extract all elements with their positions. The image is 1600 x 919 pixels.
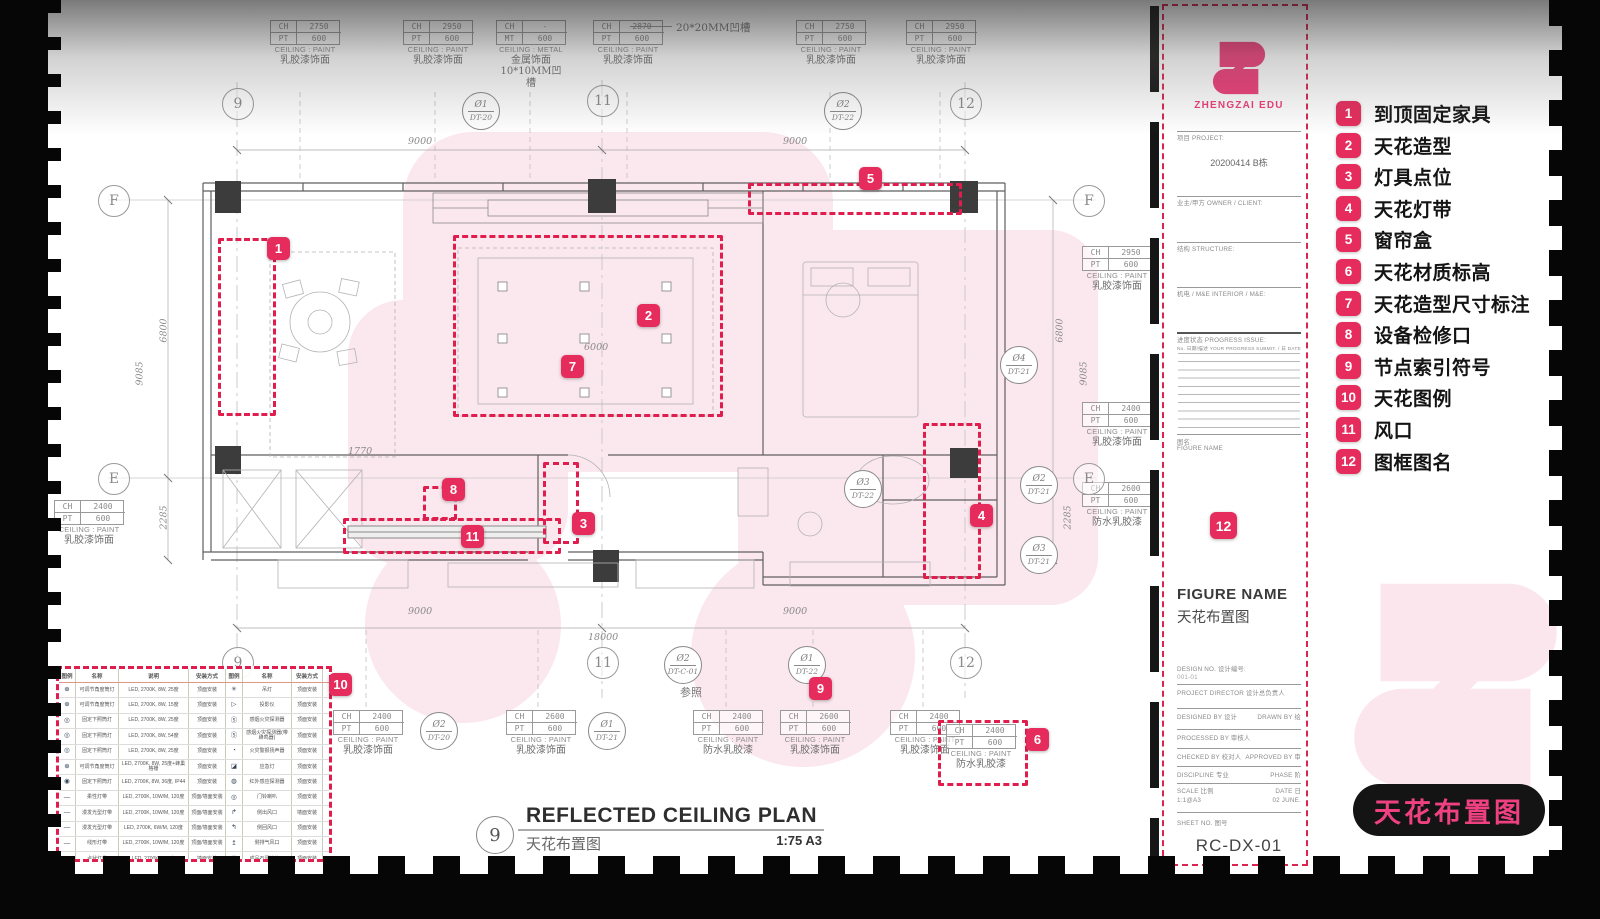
callout-finish-cn: 乳胶漆饰面 <box>906 55 976 67</box>
callout-finish-en: CEILING : PAINT <box>693 736 763 745</box>
detail-sheet: DT-21 <box>1028 486 1050 496</box>
grid-bubble: 11 <box>587 647 619 679</box>
legend-table-row: — 漫发光型灯带 LED, 2700K, 10W/M, 120度 顶面/墙面安装… <box>59 806 329 821</box>
symbol-icon: — <box>59 806 76 820</box>
callout-finish-cn: 乳胶漆饰面 <box>270 55 340 67</box>
legend-item-label: 设备检修口 <box>1374 321 1472 348</box>
annotation-badge: 11 <box>461 525 484 548</box>
figure-name-cn: 天花布置图 <box>1177 606 1301 627</box>
detail-number: Ø2 <box>670 654 696 666</box>
dimension-label: 2285 <box>1063 505 1074 529</box>
legend-table-row: — 线形灯带 LED, 2700K, 10W/M, 120度 顶面/墙面安装 ↥… <box>59 837 329 852</box>
dimension-label: 9000 <box>408 606 432 617</box>
rule <box>1177 812 1301 813</box>
annotation-box <box>748 183 962 215</box>
figure-name-en: FIGURE NAME <box>1177 586 1301 603</box>
symbol-icon: ↰ <box>226 822 243 836</box>
drawing-number-bubble: 9 <box>476 816 514 854</box>
detail-marker: Ø2 DT-20 <box>420 712 460 750</box>
legend-table-header-cell: 安装方式 <box>292 669 323 682</box>
callout-finish-en: CEILING : PAINT <box>1082 508 1152 517</box>
legend-item-label: 窗帘盒 <box>1374 226 1433 253</box>
dimension-label: 9000 <box>408 136 432 147</box>
legend-item: 8 设备检修口 <box>1336 322 1530 347</box>
symbol-icon: ◎ <box>59 729 76 743</box>
callout-finish-cn: 乳胶漆饰面 <box>780 745 850 757</box>
grid-bubble: 12 <box>950 647 982 679</box>
dimension-label: 1770 <box>348 446 372 457</box>
callout-finish-en: CEILING : PAINT <box>1082 272 1152 281</box>
rule <box>1177 196 1301 197</box>
rule <box>1177 783 1301 784</box>
sheet-no-label: SHEET NO. 图号 <box>1177 818 1301 827</box>
sheet-page: CH2750 PT600 CEILING : PAINT 乳胶漆饰面 CH295… <box>48 0 1562 874</box>
callout-finish-cn: 乳胶漆饰面 <box>333 745 403 757</box>
drawing-title-en: REFLECTED CEILING PLAN <box>526 804 838 828</box>
discipline-label: DISCIPLINE 专业 <box>1177 770 1229 779</box>
annotation-legend-panel: 1 到顶固定家具 2 天花造型 3 灯具点位 4 <box>1310 0 1562 874</box>
symbol-icon: ⊕ <box>59 760 76 774</box>
callout-table: CH2600 PT600 <box>780 710 850 735</box>
symbol-icon: — <box>59 837 76 851</box>
legend-table-header-cell: 说明 <box>119 669 189 682</box>
legend-item: 10 天花图例 <box>1336 385 1530 410</box>
ceiling-callout: CH2750 PT600 CEILING : PAINT 乳胶漆饰面 <box>270 20 340 66</box>
symbol-icon: ◎ <box>226 791 243 805</box>
ceiling-callout: CH2950 PT600 CEILING : PAINT 乳胶漆饰面 <box>906 20 976 66</box>
groove-note: 20*20MM凹槽 <box>676 20 750 35</box>
detail-sheet: DT-22 <box>832 112 854 122</box>
drawing-title-cn: 天花布置图 <box>526 833 601 854</box>
callout-finish-cn: 乳胶漆饰面 <box>54 535 124 547</box>
rule <box>1177 708 1301 709</box>
rule <box>1177 684 1301 685</box>
detail-number: Ø3 <box>1026 544 1052 556</box>
callout-table: CH2400 PT600 <box>54 500 124 525</box>
annotation-box <box>923 423 981 579</box>
ceiling-callout: CH2950 PT600 CEILING : PAINT 乳胶漆饰面 <box>403 20 473 66</box>
callout-table: CH2400 PT600 <box>693 710 763 735</box>
symbol-icon: ◍ <box>226 775 243 789</box>
rule <box>1177 766 1301 767</box>
dimension-label: 2285 <box>159 505 170 529</box>
progress-rows <box>1178 353 1300 431</box>
detail-marker: Ø1 DT-20 <box>462 92 502 130</box>
callout-finish-en: CEILING : PAINT <box>780 736 850 745</box>
detail-marker: Ø3 DT-21 <box>1020 536 1060 574</box>
detail-sheet: DT-20 <box>428 732 450 742</box>
legend-item-badge: 1 <box>1336 101 1361 126</box>
symbol-icon: ◎ <box>59 714 76 728</box>
rule <box>1177 287 1301 288</box>
detail-sheet: DT-21 <box>596 732 618 742</box>
symbol-icon: Ⓢ <box>226 714 243 728</box>
approved-by-label: APPROVED BY 审 <box>1245 752 1301 761</box>
symbol-icon: ◔ <box>226 745 243 759</box>
annotation-badge: 7 <box>561 355 584 378</box>
legend-item-label: 天花图例 <box>1374 384 1452 411</box>
legend-list: 1 到顶固定家具 2 天花造型 3 灯具点位 4 <box>1336 101 1530 474</box>
legend-table-header-cell: 图例 <box>59 669 76 682</box>
legend-item-label: 到顶固定家具 <box>1374 100 1491 127</box>
legend-item: 6 天花材质标高 <box>1336 259 1530 284</box>
annotation-badge: 8 <box>442 478 465 501</box>
legend-item-label: 天花灯带 <box>1374 195 1452 222</box>
legend-item-badge: 9 <box>1336 354 1361 379</box>
sheet-number: RC-DX-01 <box>1177 836 1301 856</box>
annotation-badge: 4 <box>970 504 993 527</box>
annotation-badge: 6 <box>1026 728 1049 751</box>
detail-sheet: DT-20 <box>470 112 492 122</box>
rule <box>1177 434 1301 435</box>
detail-number: Ø3 <box>850 478 876 490</box>
detail-marker: Ø1 DT-21 <box>588 712 628 750</box>
legend-table-header-cell: 名称 <box>76 669 119 682</box>
rule <box>1177 748 1301 749</box>
legend-item: 2 天花造型 <box>1336 133 1530 158</box>
callout-finish-cn: 防水乳胶漆 <box>1082 517 1152 529</box>
legend-item-label: 天花材质标高 <box>1374 258 1491 285</box>
legend-table-header-cell: 安装方式 <box>189 669 226 682</box>
ceiling-callout: CH2600 PT600 CEILING : PAINT 乳胶漆饰面 <box>780 710 850 756</box>
symbol-icon: Ⓢ <box>226 729 243 743</box>
drawing-title: 9 REFLECTED CEILING PLAN 天花布置图 1:75 A3 <box>468 804 838 854</box>
title-rule <box>518 829 824 831</box>
detail-number: Ø1 <box>468 100 494 112</box>
detail-sheet: DT-C-01 <box>668 666 698 676</box>
detail-number: Ø4 <box>1006 354 1032 366</box>
legend-table-row: — 漫发光型灯带 LED, 2700K, 6W/M, 120度 顶面/墙面安装 … <box>59 822 329 837</box>
title-block: ZHENGZAI EDU 项目 PROJECT: 20200414 B栋 业主/… <box>1172 0 1306 874</box>
annotation-badge: 10 <box>329 673 352 696</box>
callout-table: CH2950 PT600 <box>906 20 976 45</box>
grid-bubble: 12 <box>950 88 982 120</box>
detail-sheet: DT-21 <box>1008 366 1030 376</box>
legend-item: 5 窗帘盒 <box>1336 227 1530 252</box>
legend-item-badge: 10 <box>1336 385 1361 410</box>
rule <box>1177 332 1301 334</box>
callout-finish-en: CEILING : PAINT <box>906 46 976 55</box>
grid-bubble: E <box>98 463 130 495</box>
callout-finish-en: CEILING : PAINT <box>270 46 340 55</box>
symbol-icon: ⊠ <box>226 852 243 862</box>
legend-table-header: 图例名称说明安装方式图例名称安装方式 <box>59 669 329 683</box>
grid-bubble: 9 <box>222 88 254 120</box>
legend-item-label: 天花造型 <box>1374 132 1452 159</box>
legend-item: 12 图框图名 <box>1336 449 1530 474</box>
callout-table: CH2600 PT600 <box>506 710 576 735</box>
detail-sheet: DT-22 <box>852 490 874 500</box>
drawn-by-label: DRAWN BY 绘 <box>1257 712 1301 721</box>
date-value: 02 JUNE. <box>1272 797 1301 804</box>
legend-item: 4 天花灯带 <box>1336 196 1530 221</box>
callout-finish-cn: 乳胶漆饰面 <box>403 55 473 67</box>
callout-finish-en: CEILING : PAINT <box>1082 428 1152 437</box>
legend-item: 1 到顶固定家具 <box>1336 101 1530 126</box>
sheet-name-tag-text: 天花布置图 <box>1374 791 1524 830</box>
detail-sheet: DT-22 <box>796 666 818 676</box>
grid-bubble: 11 <box>587 85 619 117</box>
annotation-badge: 2 <box>637 304 660 327</box>
director-label: PROJECT DIRECTOR 设计总负责人 <box>1177 688 1301 697</box>
scale-label: SCALE 比例 <box>1177 786 1214 795</box>
detail-marker: Ø2 DT-C-01 参照 <box>664 646 704 684</box>
me-label: 机电 / M&E INTERIOR / M&E: <box>1177 289 1301 298</box>
ceiling-callout: CH2400 PT600 CEILING : PAINT 乳胶漆饰面 <box>54 500 124 546</box>
grid-bubble: F <box>1073 185 1105 217</box>
symbol-icon: ◉ <box>59 775 76 789</box>
detail-marker: Ø2 DT-21 <box>1020 466 1060 504</box>
legend-item-badge: 2 <box>1336 133 1361 158</box>
legend-item-label: 图框图名 <box>1374 448 1452 475</box>
legend-table-row: ⊕ 可调节角度筒灯 LED, 2700K, 8W, 25度+蜂巢格栅 顶面安装 … <box>59 760 329 775</box>
ceiling-legend-table: 图例名称说明安装方式图例名称安装方式 ⊕ 可调节角度筒灯 LED, 2700K,… <box>56 666 332 862</box>
detail-marker: Ø3 DT-22 <box>844 470 884 508</box>
symbol-icon: ⊕ <box>59 683 76 697</box>
legend-item-badge: 3 <box>1336 164 1361 189</box>
legend-table-header-cell: 图例 <box>226 669 243 682</box>
symbol-icon: — <box>59 822 76 836</box>
legend-item-badge: 8 <box>1336 322 1361 347</box>
legend-table-body: ⊕ 可调节角度筒灯 LED, 2700K, 8W, 25度 顶面安装 ✳ 吊灯 … <box>59 683 329 862</box>
legend-item: 7 天花造型尺寸标注 <box>1336 291 1530 316</box>
callout-finish-extra: 10*10MM凹槽 <box>496 66 566 89</box>
callout-finish-cn: 乳胶漆饰面 <box>1082 437 1152 449</box>
progress-label: 进度状态 PROGRESS ISSUE: <box>1177 335 1301 344</box>
legend-item-badge: 5 <box>1336 227 1361 252</box>
owner-label: 业主/甲方 OWNER / CLIENT: <box>1177 198 1301 207</box>
progress-columns: No. 日期/描述 YOUR PROGRESS SUBMIT. / 日 DATE <box>1177 345 1301 352</box>
callout-table: CH2400 PT600 <box>333 710 403 735</box>
callout-finish-cn: 乳胶漆饰面 <box>593 55 663 67</box>
dimension-label: 18000 <box>588 632 618 643</box>
grid-bubble: E <box>1073 463 1105 495</box>
design-no-value: 001-01 <box>1177 674 1301 681</box>
zhengzai-logo-icon <box>1210 40 1268 96</box>
callout-finish-cn: 防水乳胶漆 <box>693 745 763 757</box>
designed-by-label: DESIGNED BY 设计 <box>1177 712 1237 721</box>
callout-table: CH2950 PT600 <box>403 20 473 45</box>
dimension-label: 6800 <box>1055 318 1066 342</box>
annotation-box <box>218 238 276 416</box>
symbol-icon: ▷ <box>226 698 243 712</box>
dimension-label: 9085 <box>135 361 146 385</box>
detail-number: Ø2 <box>1026 474 1052 486</box>
symbol-icon: ⊕ <box>59 698 76 712</box>
callout-finish-cn: 乳胶漆饰面 <box>796 55 866 67</box>
annotation-badge: 1 <box>267 237 290 260</box>
annotation-box <box>343 518 561 554</box>
symbol-icon: — <box>59 852 76 862</box>
callout-finish-en: CEILING : PAINT <box>593 46 663 55</box>
dimension-label: 9000 <box>783 136 807 147</box>
symbol-icon: ◎ <box>59 745 76 759</box>
legend-table-row: ◎ 固定下照筒灯 LED, 2700K, 8W, 54度 顶面安装 Ⓢ 感烟火灾… <box>59 729 329 744</box>
legend-table-row: ⊕ 可调节角度筒灯 LED, 2700K, 8W, 15度 顶面安装 ▷ 投影仪… <box>59 698 329 713</box>
drawing-sheet: CH2750 PT600 CEILING : PAINT 乳胶漆饰面 CH295… <box>0 0 1600 919</box>
detail-number: Ø1 <box>794 654 820 666</box>
date-label: DATE 日 <box>1275 786 1301 795</box>
dimension-label: 9000 <box>783 606 807 617</box>
legend-item-badge: 7 <box>1336 291 1361 316</box>
legend-item-label: 天花造型尺寸标注 <box>1374 290 1530 317</box>
callout-finish-en: CEILING : PAINT <box>796 46 866 55</box>
drawing-scale: 1:75 A3 <box>776 833 822 854</box>
frame-badge: 12 <box>1210 512 1237 539</box>
callout-table: CH2750 PT600 <box>270 20 340 45</box>
detail-number: Ø1 <box>594 720 620 732</box>
figure-label-en: FIGURE NAME <box>1177 445 1301 452</box>
symbol-icon: ↥ <box>226 837 243 851</box>
ceiling-callout: CH2400 PT600 CEILING : PAINT 乳胶漆饰面 <box>1082 402 1152 448</box>
legend-table-row: ◉ 固定下照筒灯 LED, 2700K, 8W, 36度, IP44 顶面安装 … <box>59 775 329 790</box>
processed-by-label: PROCESSED BY 审核人 <box>1177 733 1301 742</box>
dimension-label: 9085 <box>1079 361 1090 385</box>
callout-finish-en: CEILING : PAINT <box>403 46 473 55</box>
ceiling-callout: CH2950 PT600 CEILING : PAINT 乳胶漆饰面 <box>1082 246 1152 292</box>
callout-finish-en: CEILING : METAL <box>496 46 566 55</box>
brand-name: ZHENGZAI EDU <box>1177 100 1301 111</box>
annotation-badge: 9 <box>809 677 832 700</box>
callout-finish-cn: 乳胶漆饰面 <box>506 745 576 757</box>
symbol-icon: — <box>59 791 76 805</box>
rule <box>1177 729 1301 730</box>
callout-finish-cn: 乳胶漆饰面 <box>1082 281 1152 293</box>
ceiling-callout: CH2400 PT600 CEILING : PAINT 防水乳胶漆 <box>693 710 763 756</box>
legend-item: 9 节点索引符号 <box>1336 354 1530 379</box>
annotation-box <box>938 720 1028 786</box>
symbol-icon: ↱ <box>226 806 243 820</box>
grid-bubble: F <box>98 185 130 217</box>
project-label: 项目 PROJECT: <box>1177 133 1301 142</box>
dimension-label: 6800 <box>159 318 170 342</box>
plan-area: CH2750 PT600 CEILING : PAINT 乳胶漆饰面 CH295… <box>48 0 1148 874</box>
detail-marker: Ø2 DT-22 <box>824 92 864 130</box>
detail-sheet: DT-21 <box>1028 556 1050 566</box>
ceiling-callout: CH2600 PT600 CEILING : PAINT 乳胶漆饰面 <box>506 710 576 756</box>
legend-table-row: ⊕ 可调节角度筒灯 LED, 2700K, 8W, 25度 顶面安装 ✳ 吊灯 … <box>59 683 329 698</box>
rule <box>1177 242 1301 243</box>
structure-label: 结构 STRUCTURE: <box>1177 244 1301 253</box>
legend-item-label: 节点索引符号 <box>1374 353 1491 380</box>
legend-item-badge: 4 <box>1336 196 1361 221</box>
ceiling-callout: CH2400 PT600 CEILING : PAINT 乳胶漆饰面 <box>333 710 403 756</box>
annotation-badge: 3 <box>572 512 595 535</box>
scale-value: 1:1@A3 <box>1177 797 1201 804</box>
detail-number: Ø2 <box>426 720 452 732</box>
annotation-badge: 5 <box>859 167 882 190</box>
detail-note: 参照 <box>680 684 702 700</box>
callout-finish-en: CEILING : PAINT <box>506 736 576 745</box>
phase-label: PHASE 阶 <box>1270 770 1301 779</box>
detail-marker: Ø4 DT-21 <box>1000 346 1040 384</box>
callout-table: CH- MT600 <box>496 20 566 45</box>
checked-by-label: CHECKED BY 校对人 <box>1177 752 1241 761</box>
legend-item-badge: 6 <box>1336 259 1361 284</box>
callout-finish-en: CEILING : PAINT <box>54 526 124 535</box>
symbol-icon: ◪ <box>226 760 243 774</box>
legend-table-row: ◎ 固定下照筒灯 LED, 2700K, 8W, 25度 顶面安装 Ⓢ 感烟火灾… <box>59 714 329 729</box>
legend-item-label: 灯具点位 <box>1374 163 1452 190</box>
legend-item-badge: 11 <box>1336 417 1361 442</box>
callout-table: CH2400 PT600 <box>1082 402 1152 427</box>
legend-table-row: — 柔性灯带 LED, 2700K, 10W/M, 120度 顶面/墙面安装 ◎… <box>59 791 329 806</box>
ceiling-callout: CH- MT600 CEILING : METAL 金属饰面 10*10MM凹槽 <box>496 20 566 89</box>
symbol-icon: ✳ <box>226 683 243 697</box>
callout-finish-en: CEILING : PAINT <box>333 736 403 745</box>
ceiling-callout: CH2750 PT600 CEILING : PAINT 乳胶漆饰面 <box>796 20 866 66</box>
rule <box>1177 131 1301 132</box>
design-no-label: DESIGN NO. 设计编号: <box>1177 664 1301 673</box>
callout-table: CH2950 PT600 <box>1082 246 1152 271</box>
legend-table-row: — 点状灯带 LED, 2700K, 1W/个 墙面安装 ⊠ 成品石膏检修口 顶… <box>59 852 329 862</box>
legend-item-label: 风口 <box>1374 416 1413 443</box>
legend-table-row: ◎ 固定下照筒灯 LED, 2700K, 8W, 25度 顶面安装 ◔ 火灾警报… <box>59 745 329 760</box>
callout-table: CH2750 PT600 <box>796 20 866 45</box>
legend-item: 11 风口 <box>1336 417 1530 442</box>
legend-item: 3 灯具点位 <box>1336 164 1530 189</box>
detail-number: Ø2 <box>830 100 856 112</box>
callout-finish-cn: 金属饰面 <box>496 55 566 67</box>
project-value: 20200414 B栋 <box>1177 156 1301 169</box>
callout-table: CH2870 PT600 <box>593 20 663 45</box>
annotation-box <box>453 235 723 417</box>
legend-table-header-cell: 名称 <box>243 669 292 682</box>
legend-item-badge: 12 <box>1336 449 1361 474</box>
sheet-name-tag: 天花布置图 <box>1353 784 1545 836</box>
